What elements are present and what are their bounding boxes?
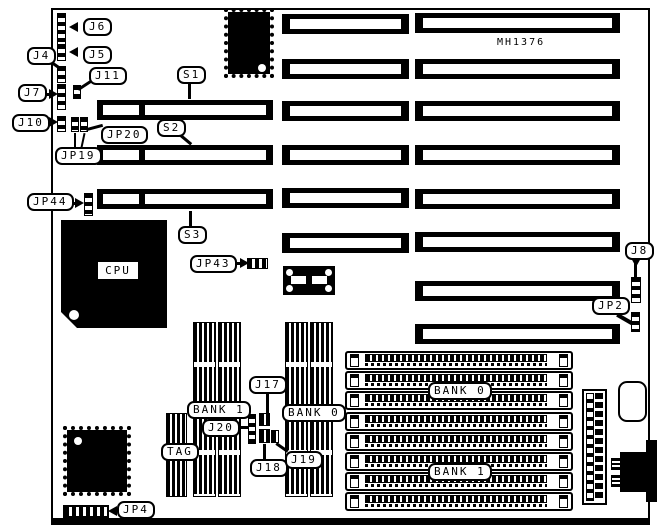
component-outline <box>618 381 647 422</box>
slot-right-8 <box>415 324 620 344</box>
jp4-pointer <box>108 506 117 516</box>
slot-right-6 <box>415 232 620 252</box>
slot-right-3 <box>415 101 620 121</box>
callout-jp19: JP19 <box>55 147 102 165</box>
jp4-jumper <box>63 505 109 518</box>
simm-socket-1 <box>345 351 573 370</box>
label-bank0-simm: BANK 0 <box>428 382 492 400</box>
j10-connector <box>57 116 66 132</box>
simm-socket-8 <box>345 492 573 511</box>
j7-pointer <box>49 89 58 99</box>
jp43-pointer <box>240 258 249 268</box>
j6-pointer <box>69 22 78 32</box>
slot-mid-4 <box>282 145 409 165</box>
callout-tag: TAG <box>161 443 199 461</box>
callout-jp4: JP4 <box>117 501 155 519</box>
qfp-chip-bottom-left <box>63 426 131 496</box>
callout-s2: S2 <box>157 119 186 137</box>
j5-pointer <box>69 47 78 57</box>
slot-right-5 <box>415 189 620 209</box>
simm-socket-4 <box>345 412 573 431</box>
s3-pointer <box>189 211 192 227</box>
slot-mid-2 <box>282 59 409 79</box>
j8-connector <box>631 277 641 303</box>
cpu-chip: CPU <box>61 220 167 328</box>
callout-jp2: JP2 <box>592 297 630 315</box>
jp44-pointer <box>75 198 84 208</box>
callout-j17: J17 <box>249 376 287 394</box>
j10-pointer <box>49 117 58 127</box>
jp44-jumper <box>84 193 93 216</box>
connector-block <box>283 266 335 295</box>
j17-pointer <box>266 392 269 414</box>
board-diagram: MH1376 CPU <box>0 0 657 528</box>
callout-j10: J10 <box>12 114 50 132</box>
slot-mid-3 <box>282 101 409 121</box>
s1-pointer <box>188 82 191 99</box>
slot-s2 <box>97 145 273 165</box>
jp43-jumper <box>247 258 268 269</box>
slot-s3 <box>97 189 273 209</box>
j18-jumper <box>259 429 270 443</box>
jp19-pointer-a <box>74 133 76 148</box>
j19-jumper <box>271 430 279 443</box>
callout-j18: J18 <box>250 459 288 477</box>
slot-mid-6 <box>282 233 409 253</box>
slot-right-2 <box>415 59 620 79</box>
label-bank1-simm: BANK 1 <box>428 463 492 481</box>
keyboard-mini-connector-2 <box>611 475 621 487</box>
j18-pointer <box>263 444 266 460</box>
power-connector <box>582 389 607 505</box>
slot-s1 <box>97 100 273 120</box>
callout-j6: J6 <box>83 18 112 36</box>
j6-connector <box>57 13 66 46</box>
simm-socket-5 <box>345 432 573 451</box>
cpu-label: CPU <box>98 262 138 279</box>
callout-jp20: JP20 <box>101 126 148 144</box>
slot-right-4 <box>415 145 620 165</box>
keyboard-connector-body <box>620 452 647 492</box>
callout-j5: J5 <box>83 46 112 64</box>
callout-j20: J20 <box>202 419 240 437</box>
label-bank0-dip: BANK 0 <box>282 404 346 422</box>
callout-j4: J4 <box>27 47 56 65</box>
keyboard-mini-connector-1 <box>611 458 621 470</box>
callout-jp43: JP43 <box>190 255 237 273</box>
j7-connector <box>57 84 66 110</box>
board-model-text: MH1376 <box>497 37 545 48</box>
slot-mid-1 <box>282 14 409 34</box>
j20-jumper <box>248 414 256 444</box>
callout-j19: J19 <box>285 451 323 469</box>
jp20-connector <box>71 117 79 132</box>
callout-j11: J11 <box>89 67 127 85</box>
slot-right-1 <box>415 13 620 33</box>
callout-jp44: JP44 <box>27 193 74 211</box>
j8-pointer-line <box>634 263 637 277</box>
callout-s3: S3 <box>178 226 207 244</box>
j5-connector <box>57 44 66 61</box>
slot-mid-5 <box>282 188 409 208</box>
callout-s1: S1 <box>177 66 206 84</box>
j17-jumper <box>259 413 270 426</box>
label-bank1-dip: BANK 1 <box>187 401 251 419</box>
keyboard-connector-bar <box>646 440 657 502</box>
callout-j7: J7 <box>18 84 47 102</box>
qfp-chip-top <box>224 8 274 78</box>
slot-right-7 <box>415 281 620 301</box>
callout-j8: J8 <box>625 242 654 260</box>
